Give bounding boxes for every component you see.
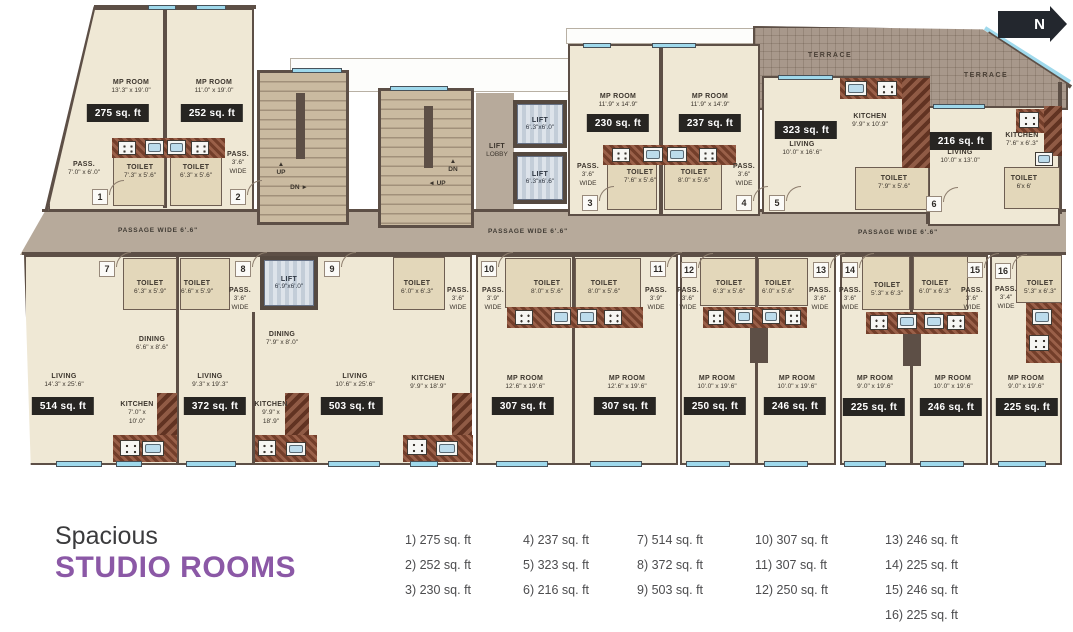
sqft-badge-4: 237 sq. ft bbox=[679, 114, 741, 132]
sqft-badge-8: 372 sq. ft bbox=[184, 397, 246, 415]
room-label: DINING6'.6" x 8'.6" bbox=[136, 335, 168, 353]
room-label: TOILET6'.0" x 5'.6" bbox=[762, 279, 794, 297]
unit-number-8: 8 bbox=[235, 261, 251, 277]
window bbox=[778, 75, 833, 80]
stove-icon bbox=[120, 440, 140, 456]
legend-column-1: 1) 275 sq. ft2) 252 sq. ft3) 230 sq. ft bbox=[405, 528, 471, 603]
room-label: PASS.3'.6"WIDE bbox=[961, 286, 983, 312]
sqft-badge-9: 503 sq. ft bbox=[321, 397, 383, 415]
window bbox=[652, 43, 696, 48]
stair-direction-label: UP bbox=[276, 169, 285, 176]
room-label: TOILET8'.0" x 5'.6" bbox=[678, 168, 710, 186]
sink-icon bbox=[551, 309, 571, 325]
north-label: N bbox=[1034, 16, 1045, 33]
unit-number-10: 10 bbox=[481, 261, 497, 277]
legend: Spacious STUDIO ROOMS 1) 275 sq. ft2) 25… bbox=[0, 505, 1073, 632]
sink-icon bbox=[142, 441, 164, 456]
lift-2: LIFT6'.3"x6'.6" bbox=[513, 152, 567, 204]
lift-label: LIFT bbox=[281, 276, 297, 283]
room-label: PASS.3'.6"WIDE bbox=[229, 286, 251, 312]
sink-icon bbox=[897, 314, 917, 329]
sqft-badge-2: 252 sq. ft bbox=[181, 104, 243, 122]
legend-item: 7) 514 sq. ft bbox=[637, 528, 703, 553]
stove-icon bbox=[118, 141, 136, 155]
sink-icon bbox=[667, 147, 687, 162]
sink-icon bbox=[286, 442, 306, 456]
room-label: TOILET7'.6" x 5'.6" bbox=[624, 168, 656, 186]
floor-plan: N LIFT6'.3"x6'.0"LIFT6'.3"x6'.6"LIFT6'.9… bbox=[0, 0, 1073, 505]
room-label: KITCHEN9'.9" x 18'.9" bbox=[410, 374, 446, 392]
lift-dims: 6'.3"x6'.0" bbox=[526, 124, 554, 131]
stair-direction-label: ▲ bbox=[450, 158, 456, 165]
room-label: TOILET8'.0" x 5'.6" bbox=[531, 279, 563, 297]
unit-number-3: 3 bbox=[582, 195, 598, 211]
lift-cab: LIFT6'.3"x6'.6" bbox=[517, 156, 563, 200]
lift-cab: LIFT6'.3"x6'.0" bbox=[517, 104, 563, 144]
unit-number-14: 14 bbox=[842, 262, 858, 278]
room-label: LIVING14'.3" x 25'.6" bbox=[44, 372, 83, 390]
window bbox=[686, 461, 730, 467]
wall-segment bbox=[296, 93, 305, 159]
wall-segment bbox=[424, 106, 433, 168]
room-label: TOILET6'.3" x 5'.9" bbox=[134, 279, 166, 297]
room-label: KITCHEN7'.0" x10'.0" bbox=[120, 400, 153, 426]
room-label: MP ROOM9'.0" x 19'.6" bbox=[1008, 374, 1044, 392]
room-label: MP ROOM12'.6" x 19'.6" bbox=[505, 374, 544, 392]
unit-number-1: 1 bbox=[92, 189, 108, 205]
room-label: TOILET6'.3" x 5'.6" bbox=[180, 163, 212, 181]
legend-item: 6) 216 sq. ft bbox=[523, 578, 589, 603]
lift-label: LIFT bbox=[532, 171, 548, 178]
room-label: PASS.3'.9"WIDE bbox=[482, 286, 504, 312]
lift-label: LIFT bbox=[532, 117, 548, 124]
sqft-badge-3: 230 sq. ft bbox=[587, 114, 649, 132]
sink-icon bbox=[762, 309, 780, 324]
unit-number-12: 12 bbox=[681, 262, 697, 278]
unit-number-9: 9 bbox=[324, 261, 340, 277]
legend-item: 15) 246 sq. ft bbox=[885, 578, 958, 603]
window bbox=[196, 5, 226, 10]
legend-item: 16) 225 sq. ft bbox=[885, 603, 958, 628]
terrace-label: TERRACE bbox=[808, 52, 852, 59]
stair-direction-label: ◄ UP bbox=[428, 180, 445, 187]
room-label: LIVING10'.0" x 13'.0" bbox=[940, 148, 979, 166]
sink-icon bbox=[643, 147, 663, 162]
room-label: PASS.3'.6"WIDE bbox=[447, 286, 469, 312]
window bbox=[390, 86, 448, 91]
sqft-badge-12: 250 sq. ft bbox=[684, 397, 746, 415]
room-label: TOILET7'.3" x 5'.6" bbox=[124, 163, 156, 181]
terrace-label: TERRACE bbox=[964, 72, 1008, 79]
north-arrow: N bbox=[998, 6, 1067, 42]
legend-item: 14) 225 sq. ft bbox=[885, 553, 958, 578]
window bbox=[583, 43, 611, 48]
sink-icon bbox=[735, 309, 753, 324]
legend-item: 3) 230 sq. ft bbox=[405, 578, 471, 603]
room-label: TOILET7'.9" x 5'.6" bbox=[878, 174, 910, 192]
window bbox=[590, 461, 642, 467]
legend-item: 9) 503 sq. ft bbox=[637, 578, 703, 603]
legend-item: 8) 372 sq. ft bbox=[637, 553, 703, 578]
lift-1: LIFT6'.3"x6'.0" bbox=[513, 100, 567, 148]
unit-number-4: 4 bbox=[736, 195, 752, 211]
room-label: PASS.3'.6"WIDE bbox=[577, 162, 599, 188]
kitchen-platform bbox=[1044, 106, 1062, 156]
window bbox=[186, 461, 236, 467]
legend-title-line2: STUDIO ROOMS bbox=[55, 551, 296, 585]
room-label: MP ROOM11'.9" x 14'.9" bbox=[599, 92, 638, 110]
lift-dims: 6'.9"x6'.0" bbox=[275, 283, 303, 290]
window bbox=[116, 461, 142, 467]
room-label: PASS.3'.4"WIDE bbox=[995, 285, 1017, 311]
passage-label: PASSAGE WIDE 6'.6" bbox=[488, 228, 568, 235]
room-label: LIVING9'.3" x 19'.3" bbox=[192, 372, 228, 390]
sink-icon bbox=[1032, 309, 1052, 325]
room-label: TOILET6'x 6' bbox=[1011, 174, 1038, 192]
sink-icon bbox=[167, 140, 186, 155]
room-label: PASS.7'.0" x 6'.0" bbox=[68, 160, 100, 178]
room-label: MP ROOM9'.0" x 19'.6" bbox=[857, 374, 893, 392]
room-label: TOILET6'.0" x 6'.3" bbox=[919, 279, 951, 297]
stair-direction-label: ▲ bbox=[278, 161, 284, 168]
stove-icon bbox=[515, 310, 533, 325]
legend-title-line1: Spacious bbox=[55, 522, 158, 551]
stove-icon bbox=[407, 439, 427, 455]
room-label: LIVING10'.0" x 16'.6" bbox=[782, 140, 821, 158]
legend-column-2: 4) 237 sq. ft5) 323 sq. ft6) 216 sq. ft bbox=[523, 528, 589, 603]
window bbox=[920, 461, 964, 467]
sqft-badge-13: 246 sq. ft bbox=[764, 397, 826, 415]
window bbox=[292, 68, 342, 73]
room-label: MP ROOM13'.3" x 19'.0" bbox=[111, 78, 150, 96]
room-label: TOILET6'.3" x 5'.6" bbox=[713, 279, 745, 297]
sink-icon bbox=[145, 140, 164, 155]
lift-3: LIFT6'.9"x6'.0" bbox=[260, 256, 318, 310]
stove-icon bbox=[191, 141, 209, 155]
window bbox=[933, 104, 985, 109]
stove-icon bbox=[1019, 112, 1039, 128]
stove-icon bbox=[604, 310, 622, 325]
room-label: TOILET5'.3" x 6'.3" bbox=[1024, 279, 1056, 297]
window bbox=[998, 461, 1046, 467]
legend-item: 4) 237 sq. ft bbox=[523, 528, 589, 553]
stove-icon bbox=[1029, 335, 1049, 351]
room-label: MP ROOM11'.0" x 19'.0" bbox=[195, 78, 234, 96]
legend-column-3: 7) 514 sq. ft8) 372 sq. ft9) 503 sq. ft bbox=[637, 528, 703, 603]
legend-column-4: 10) 307 sq. ft11) 307 sq. ft12) 250 sq. … bbox=[755, 528, 828, 603]
legend-item: 2) 252 sq. ft bbox=[405, 553, 471, 578]
room-label: TOILET6'.6" x 5'.9" bbox=[181, 279, 213, 297]
room-label: KITCHEN7'.6" x 6'.3" bbox=[1005, 131, 1038, 149]
room-label: TOILET8'.0" x 5'.6" bbox=[588, 279, 620, 297]
sink-icon bbox=[845, 81, 867, 96]
parapet-band bbox=[566, 28, 762, 44]
wall-segment bbox=[659, 44, 663, 216]
window bbox=[496, 461, 548, 467]
passage-label: PASSAGE WIDE 6'.6" bbox=[118, 227, 198, 234]
room-label: KITCHEN9'.9" x18'.9" bbox=[254, 400, 287, 426]
legend-item: 10) 307 sq. ft bbox=[755, 528, 828, 553]
sqft-badge-15: 246 sq. ft bbox=[920, 398, 982, 416]
sink-icon bbox=[1035, 152, 1053, 166]
unit-number-5: 5 bbox=[769, 195, 785, 211]
sqft-badge-10: 307 sq. ft bbox=[492, 397, 554, 415]
legend-item: 12) 250 sq. ft bbox=[755, 578, 828, 603]
room-label: MP ROOM10'.0" x 19'.6" bbox=[933, 374, 972, 392]
north-arrow-body: N bbox=[998, 11, 1050, 38]
legend-column-5: 13) 246 sq. ft14) 225 sq. ft15) 246 sq. … bbox=[885, 528, 958, 628]
unit-number-13: 13 bbox=[813, 262, 829, 278]
unit-number-2: 2 bbox=[230, 189, 246, 205]
sink-icon bbox=[924, 314, 944, 329]
stair-direction-label: DN bbox=[448, 166, 457, 173]
sqft-badge-6: 216 sq. ft bbox=[930, 132, 992, 150]
room-label: PASS.3'.6"WIDE bbox=[227, 150, 249, 176]
room-label: MP ROOM11'.9" x 14'.9" bbox=[691, 92, 730, 110]
unit-number-6: 6 bbox=[926, 196, 942, 212]
unit-number-15: 15 bbox=[967, 262, 983, 278]
sqft-badge-16: 225 sq. ft bbox=[996, 398, 1058, 416]
legend-item: 13) 246 sq. ft bbox=[885, 528, 958, 553]
sqft-badge-14: 225 sq. ft bbox=[843, 398, 905, 416]
room-label: TOILET5'.3" x 6'.3" bbox=[871, 281, 903, 299]
wall-segment bbox=[750, 325, 768, 363]
room-label: MP ROOM10'.0" x 19'.6" bbox=[697, 374, 736, 392]
stove-icon bbox=[612, 148, 630, 162]
window bbox=[148, 5, 176, 10]
room-label: PASS.3'.6"WIDE bbox=[677, 286, 699, 312]
room-label: KITCHEN9'.9" x 10'.9" bbox=[852, 112, 888, 130]
window bbox=[328, 461, 380, 467]
stair-direction-label: DN ► bbox=[290, 184, 308, 191]
room-label: LIVING10'.6" x 25'.6" bbox=[335, 372, 374, 390]
room-label: DINING7'.9" x 8'.0" bbox=[266, 330, 298, 348]
passage-label: PASSAGE WIDE 6'.6" bbox=[858, 229, 938, 236]
window bbox=[410, 461, 438, 467]
stove-icon bbox=[699, 148, 717, 162]
sink-icon bbox=[577, 309, 597, 325]
sqft-badge-1: 275 sq. ft bbox=[87, 104, 149, 122]
lift-cab: LIFT6'.9"x6'.0" bbox=[264, 260, 314, 306]
legend-item: 11) 307 sq. ft bbox=[755, 553, 828, 578]
legend-item: 5) 323 sq. ft bbox=[523, 553, 589, 578]
unit-number-11: 11 bbox=[650, 261, 666, 277]
unit-number-7: 7 bbox=[99, 261, 115, 277]
stove-icon bbox=[785, 310, 801, 325]
floorplan-canvas: N LIFT6'.3"x6'.0"LIFT6'.3"x6'.6"LIFT6'.9… bbox=[0, 0, 1073, 632]
room-label: MP ROOM10'.0" x 19'.6" bbox=[777, 374, 816, 392]
room-label: PASS.3'.9"WIDE bbox=[645, 286, 667, 312]
legend-item: 1) 275 sq. ft bbox=[405, 528, 471, 553]
sqft-badge-7: 514 sq. ft bbox=[32, 397, 94, 415]
sqft-badge-5: 323 sq. ft bbox=[775, 121, 837, 139]
room-label: LIFTLOBBY bbox=[486, 142, 508, 160]
lift-dims: 6'.3"x6'.6" bbox=[526, 178, 554, 185]
kitchen-platform bbox=[902, 78, 930, 168]
room-label: TOILET6'.0" x 6'.3" bbox=[401, 279, 433, 297]
room-label: PASS.3'.6"WIDE bbox=[839, 286, 861, 312]
stove-icon bbox=[708, 310, 724, 325]
stove-icon bbox=[258, 440, 276, 456]
north-arrow-tip bbox=[1050, 6, 1067, 42]
window bbox=[764, 461, 808, 467]
room-label: PASS.3'.6"WIDE bbox=[733, 162, 755, 188]
room-label: PASS.3'.6"WIDE bbox=[809, 286, 831, 312]
sqft-badge-11: 307 sq. ft bbox=[594, 397, 656, 415]
unit-number-16: 16 bbox=[995, 263, 1011, 279]
window bbox=[844, 461, 886, 467]
sink-icon bbox=[436, 441, 458, 456]
stove-icon bbox=[947, 315, 965, 330]
stove-icon bbox=[870, 315, 888, 330]
stove-icon bbox=[877, 81, 897, 96]
room-label: MP ROOM12'.6" x 19'.6" bbox=[607, 374, 646, 392]
window bbox=[56, 461, 102, 467]
